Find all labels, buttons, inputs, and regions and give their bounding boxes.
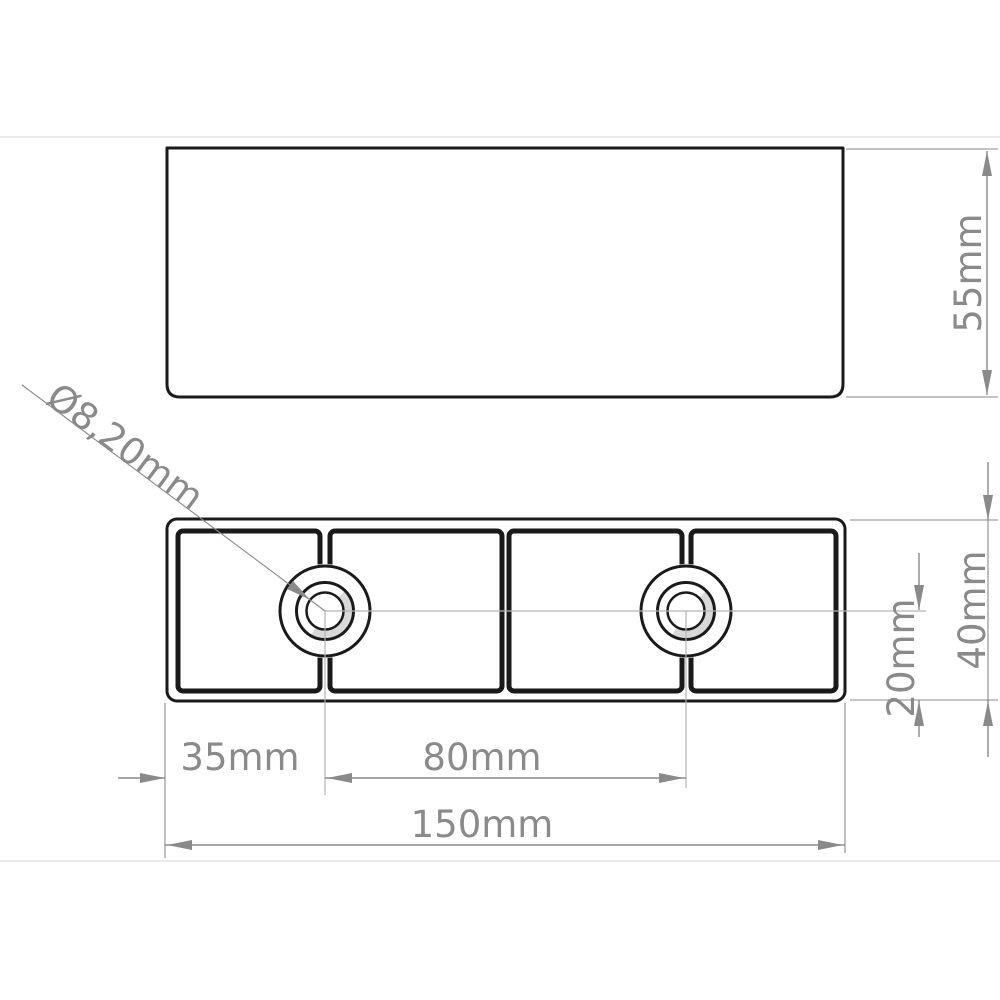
bottom-view: Ø8,20mm 35mm 80mm 150mm: [22, 375, 998, 858]
dimension-label-35mm: 35mm: [180, 736, 299, 779]
arrowhead-icon: [167, 840, 192, 850]
dimension-label-40mm: 40mm: [951, 550, 994, 669]
dimension-35mm: 35mm: [118, 703, 300, 858]
arrowhead-icon: [983, 495, 993, 520]
dimension-label-150mm: 150mm: [411, 803, 554, 846]
side-view: 55mm: [167, 148, 998, 397]
drawing-canvas: 55mm: [0, 0, 1000, 1000]
dimension-label-80mm: 80mm: [422, 736, 541, 779]
dimension-55mm: 55mm: [846, 149, 998, 397]
dimension-20mm: 20mm: [880, 553, 924, 737]
side-view-outline: [167, 148, 843, 397]
dimension-40mm: 40mm: [850, 462, 998, 757]
arrowhead-icon: [818, 840, 843, 850]
arrowhead-icon: [659, 773, 684, 783]
arrowhead-icon: [982, 370, 992, 395]
technical-drawing: 55mm: [0, 0, 1000, 1000]
leader-diameter: Ø8,20mm: [22, 375, 325, 611]
bottom-view-outline: [167, 519, 845, 701]
dimension-80mm: 80mm: [325, 736, 686, 783]
arrowhead-icon: [140, 773, 165, 783]
arrowhead-icon: [983, 701, 993, 726]
arrowhead-icon: [327, 773, 352, 783]
dimension-label-55mm: 55mm: [947, 213, 990, 332]
arrowhead-icon: [982, 151, 992, 176]
